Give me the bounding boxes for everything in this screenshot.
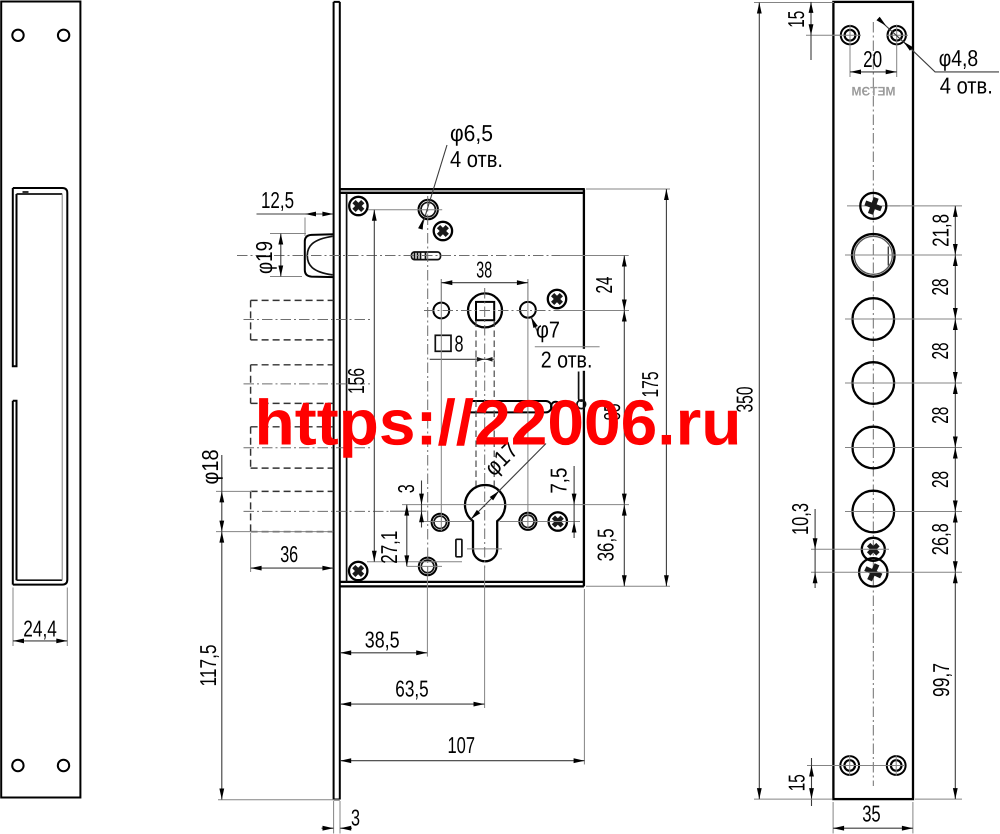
svg-text:3: 3	[393, 484, 419, 493]
svg-text:38: 38	[476, 257, 492, 283]
svg-text:63,5: 63,5	[395, 676, 428, 702]
svg-text:99,7: 99,7	[928, 663, 954, 697]
svg-text:28: 28	[927, 471, 953, 488]
svg-text:36: 36	[280, 541, 298, 567]
svg-text:2 отв.: 2 отв.	[541, 347, 593, 373]
svg-text:10,3: 10,3	[787, 503, 813, 535]
svg-text:φ4,8: φ4,8	[939, 45, 979, 71]
svg-text:28: 28	[927, 343, 953, 360]
svg-text:35: 35	[862, 801, 881, 827]
svg-text:28: 28	[927, 279, 953, 296]
svg-text:https://22006.ru: https://22006.ru	[255, 387, 742, 459]
svg-text:21,8: 21,8	[928, 214, 954, 247]
svg-text:27,1: 27,1	[376, 531, 402, 564]
svg-text:8: 8	[455, 331, 464, 357]
svg-text:φ7: φ7	[536, 317, 560, 343]
svg-text:15: 15	[784, 774, 810, 791]
svg-text:4 отв.: 4 отв.	[940, 73, 993, 99]
svg-text:7,5: 7,5	[546, 468, 572, 494]
svg-text:МЕТЭМ: МЕТЭМ	[852, 85, 896, 99]
svg-text:20: 20	[863, 46, 882, 72]
svg-text:24,4: 24,4	[23, 616, 57, 642]
svg-text:φ18: φ18	[197, 450, 223, 485]
svg-text:4 отв.: 4 отв.	[450, 146, 503, 172]
svg-text:26,8: 26,8	[927, 523, 953, 555]
svg-text:15: 15	[783, 11, 809, 28]
svg-text:38,5: 38,5	[365, 627, 400, 653]
svg-text:28: 28	[927, 407, 953, 424]
svg-text:φ6,5: φ6,5	[450, 120, 493, 146]
svg-text:12,5: 12,5	[261, 187, 294, 213]
svg-text:φ19: φ19	[251, 241, 277, 274]
svg-text:107: 107	[448, 732, 476, 758]
svg-text:117,5: 117,5	[195, 645, 221, 687]
svg-text:24: 24	[591, 276, 617, 293]
svg-text:36,5: 36,5	[593, 528, 619, 561]
svg-text:3: 3	[351, 805, 360, 831]
